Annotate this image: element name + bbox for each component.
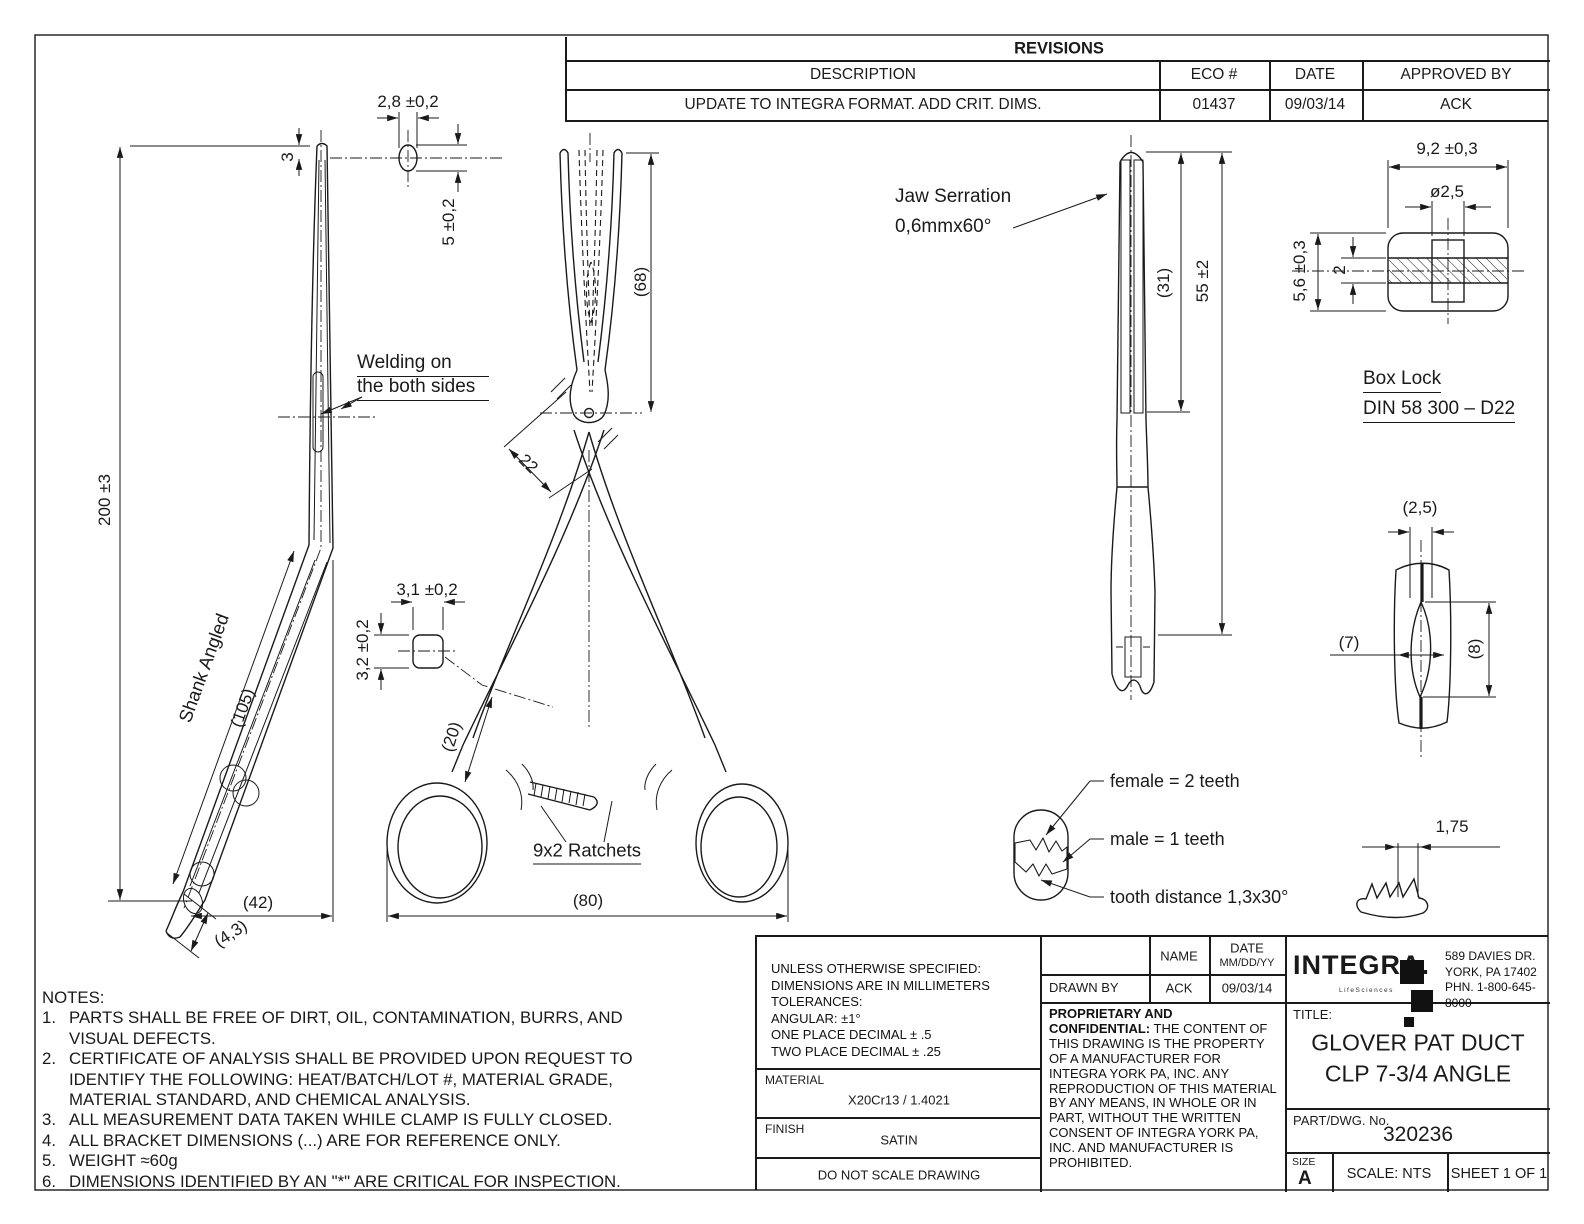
revisions-col-description: DESCRIPTION [810, 66, 916, 84]
dim-handle-cs-height: 3,2 ±0,2 [353, 619, 373, 680]
size-value: A [1298, 1168, 1312, 1190]
dim-cs-height: 5 ±0,2 [439, 198, 459, 245]
note-item: 5.WEIGHT ≈60g [42, 1151, 634, 1171]
logo-square-small [1404, 1017, 1414, 1027]
boxlock-label-line1: Box Lock [1363, 368, 1441, 393]
material-label: MATERIAL [765, 1073, 824, 1087]
revision-date: 09/03/14 [1285, 96, 1345, 114]
dim-overall-length: 200 ±3 [95, 474, 115, 526]
dim-boxlock-mid: 2 [1330, 265, 1350, 274]
welding-note-line2: the both sides [357, 376, 489, 401]
revisions-table: REVISIONS DESCRIPTION ECO # DATE APPROVE… [565, 37, 1548, 122]
proprietary-body: THE CONTENT OF THIS DRAWING IS THE PROPE… [1049, 1021, 1276, 1170]
drawing-title-line2: CLP 7-3/4 ANGLE [1325, 1061, 1511, 1088]
date-header: DATE [1230, 941, 1264, 956]
logo-square-large [1400, 960, 1424, 984]
size-label: SIZE [1292, 1156, 1315, 1168]
welding-note-line1: Welding on [357, 352, 489, 377]
integra-logo-tagline: LifeSciences [1339, 987, 1394, 994]
dim-tipview-width-top: (2,5) [1403, 498, 1438, 518]
dim-jaw-length-front: (68) [631, 267, 651, 297]
dim-jaw-length: 55 ±2 [1193, 260, 1213, 302]
dim-bend-offset: (42) [243, 893, 273, 913]
note-item: 3.ALL MEASUREMENT DATA TAKEN WHILE CLAMP… [42, 1110, 634, 1130]
tolerance-block: UNLESS OTHERWISE SPECIFIED: DIMENSIONS A… [771, 961, 990, 1060]
teeth-male-label: male = 1 teeth [1110, 829, 1225, 850]
boxlock-label-line2: DIN 58 300 – D22 [1363, 398, 1515, 423]
title-block: UNLESS OTHERWISE SPECIFIED: DIMENSIONS A… [755, 935, 1548, 1190]
notes: NOTES: 1.PARTS SHALL BE FREE OF DIRT, OI… [42, 988, 634, 1192]
drawn-by-date: 09/03/14 [1222, 981, 1273, 996]
finish-label: FINISH [765, 1122, 804, 1136]
scale-value: SCALE: NTS [1347, 1166, 1432, 1182]
integra-address: 589 DAVIES DR. YORK, PA 17402 PHN. 1-800… [1445, 949, 1548, 1011]
jaw-serration-label-line1: Jaw Serration [895, 186, 1011, 208]
dim-tooth-pitch: 1,75 [1435, 817, 1468, 837]
revisions-col-approved: APPROVED BY [1400, 66, 1511, 84]
dim-tipview-width: (7) [1339, 633, 1360, 653]
revision-description: UPDATE TO INTEGRA FORMAT. ADD CRIT. DIMS… [684, 96, 1041, 114]
revision-approved: ACK [1440, 96, 1472, 114]
revision-eco: 01437 [1192, 96, 1235, 114]
part-number-value: 320236 [1383, 1123, 1453, 1147]
dim-boxlock-hole: ø2,5 [1430, 182, 1464, 202]
notes-title: NOTES: [42, 988, 634, 1008]
logo-square-medium [1411, 990, 1433, 1012]
teeth-female-label: female = 2 teeth [1110, 771, 1240, 792]
teeth-distance-label: tooth distance 1,3x30° [1110, 887, 1288, 908]
finish-value: SATIN [880, 1133, 917, 1148]
note-item: 6.DIMENSIONS IDENTIFIED BY AN "*" ARE CR… [42, 1172, 634, 1192]
drawn-by-name: ACK [1166, 981, 1193, 996]
part-number-label: PART/DWG. No. [1293, 1113, 1389, 1128]
dim-handle-width: (80) [573, 891, 603, 911]
do-not-scale: DO NOT SCALE DRAWING [818, 1168, 981, 1183]
revisions-title: REVISIONS [1014, 40, 1104, 59]
revisions-col-date: DATE [1295, 66, 1335, 84]
dim-boxlock-height: 5,6 ±0,3 [1290, 240, 1310, 301]
dim-tip-offset: 3 [278, 152, 298, 161]
title-label: TITLE: [1293, 1007, 1332, 1022]
note-item: 4.ALL BRACKET DIMENSIONS (...) ARE FOR R… [42, 1131, 634, 1151]
dim-serration-length: (31) [1154, 268, 1174, 298]
name-header: NAME [1160, 949, 1198, 964]
dim-handle-cs-width: 3,1 ±0,2 [396, 580, 457, 600]
drawn-by-label: DRAWN BY [1049, 980, 1119, 995]
material-value: X20Cr13 / 1.4021 [848, 1093, 950, 1108]
proprietary-notice: PROPRIETARY AND CONFIDENTIAL: THE CONTEN… [1049, 1007, 1277, 1171]
ratchets-label: 9x2 Ratchets [533, 840, 641, 865]
drawing-title-line1: GLOVER PAT DUCT [1311, 1030, 1524, 1057]
sheet-value: SHEET 1 OF 1 [1451, 1166, 1547, 1182]
dim-cs-width: 2,8 ±0,2 [377, 92, 438, 112]
dim-boxlock-width: 9,2 ±0,3 [1416, 139, 1477, 159]
date-subheader: MM/DD/YY [1220, 957, 1275, 969]
note-item: 1.PARTS SHALL BE FREE OF DIRT, OIL, CONT… [42, 1008, 634, 1049]
jaw-serration-label-line2: 0,6mmx60° [895, 216, 991, 238]
note-item: 2.CERTIFICATE OF ANALYSIS SHALL BE PROVI… [42, 1049, 634, 1110]
dim-tipview-height: (8) [1465, 639, 1485, 660]
revisions-col-eco: ECO # [1191, 66, 1238, 84]
drawing-sheet: .out{fill:none;stroke:#1a1a1a;stroke-wid… [0, 0, 1584, 1224]
